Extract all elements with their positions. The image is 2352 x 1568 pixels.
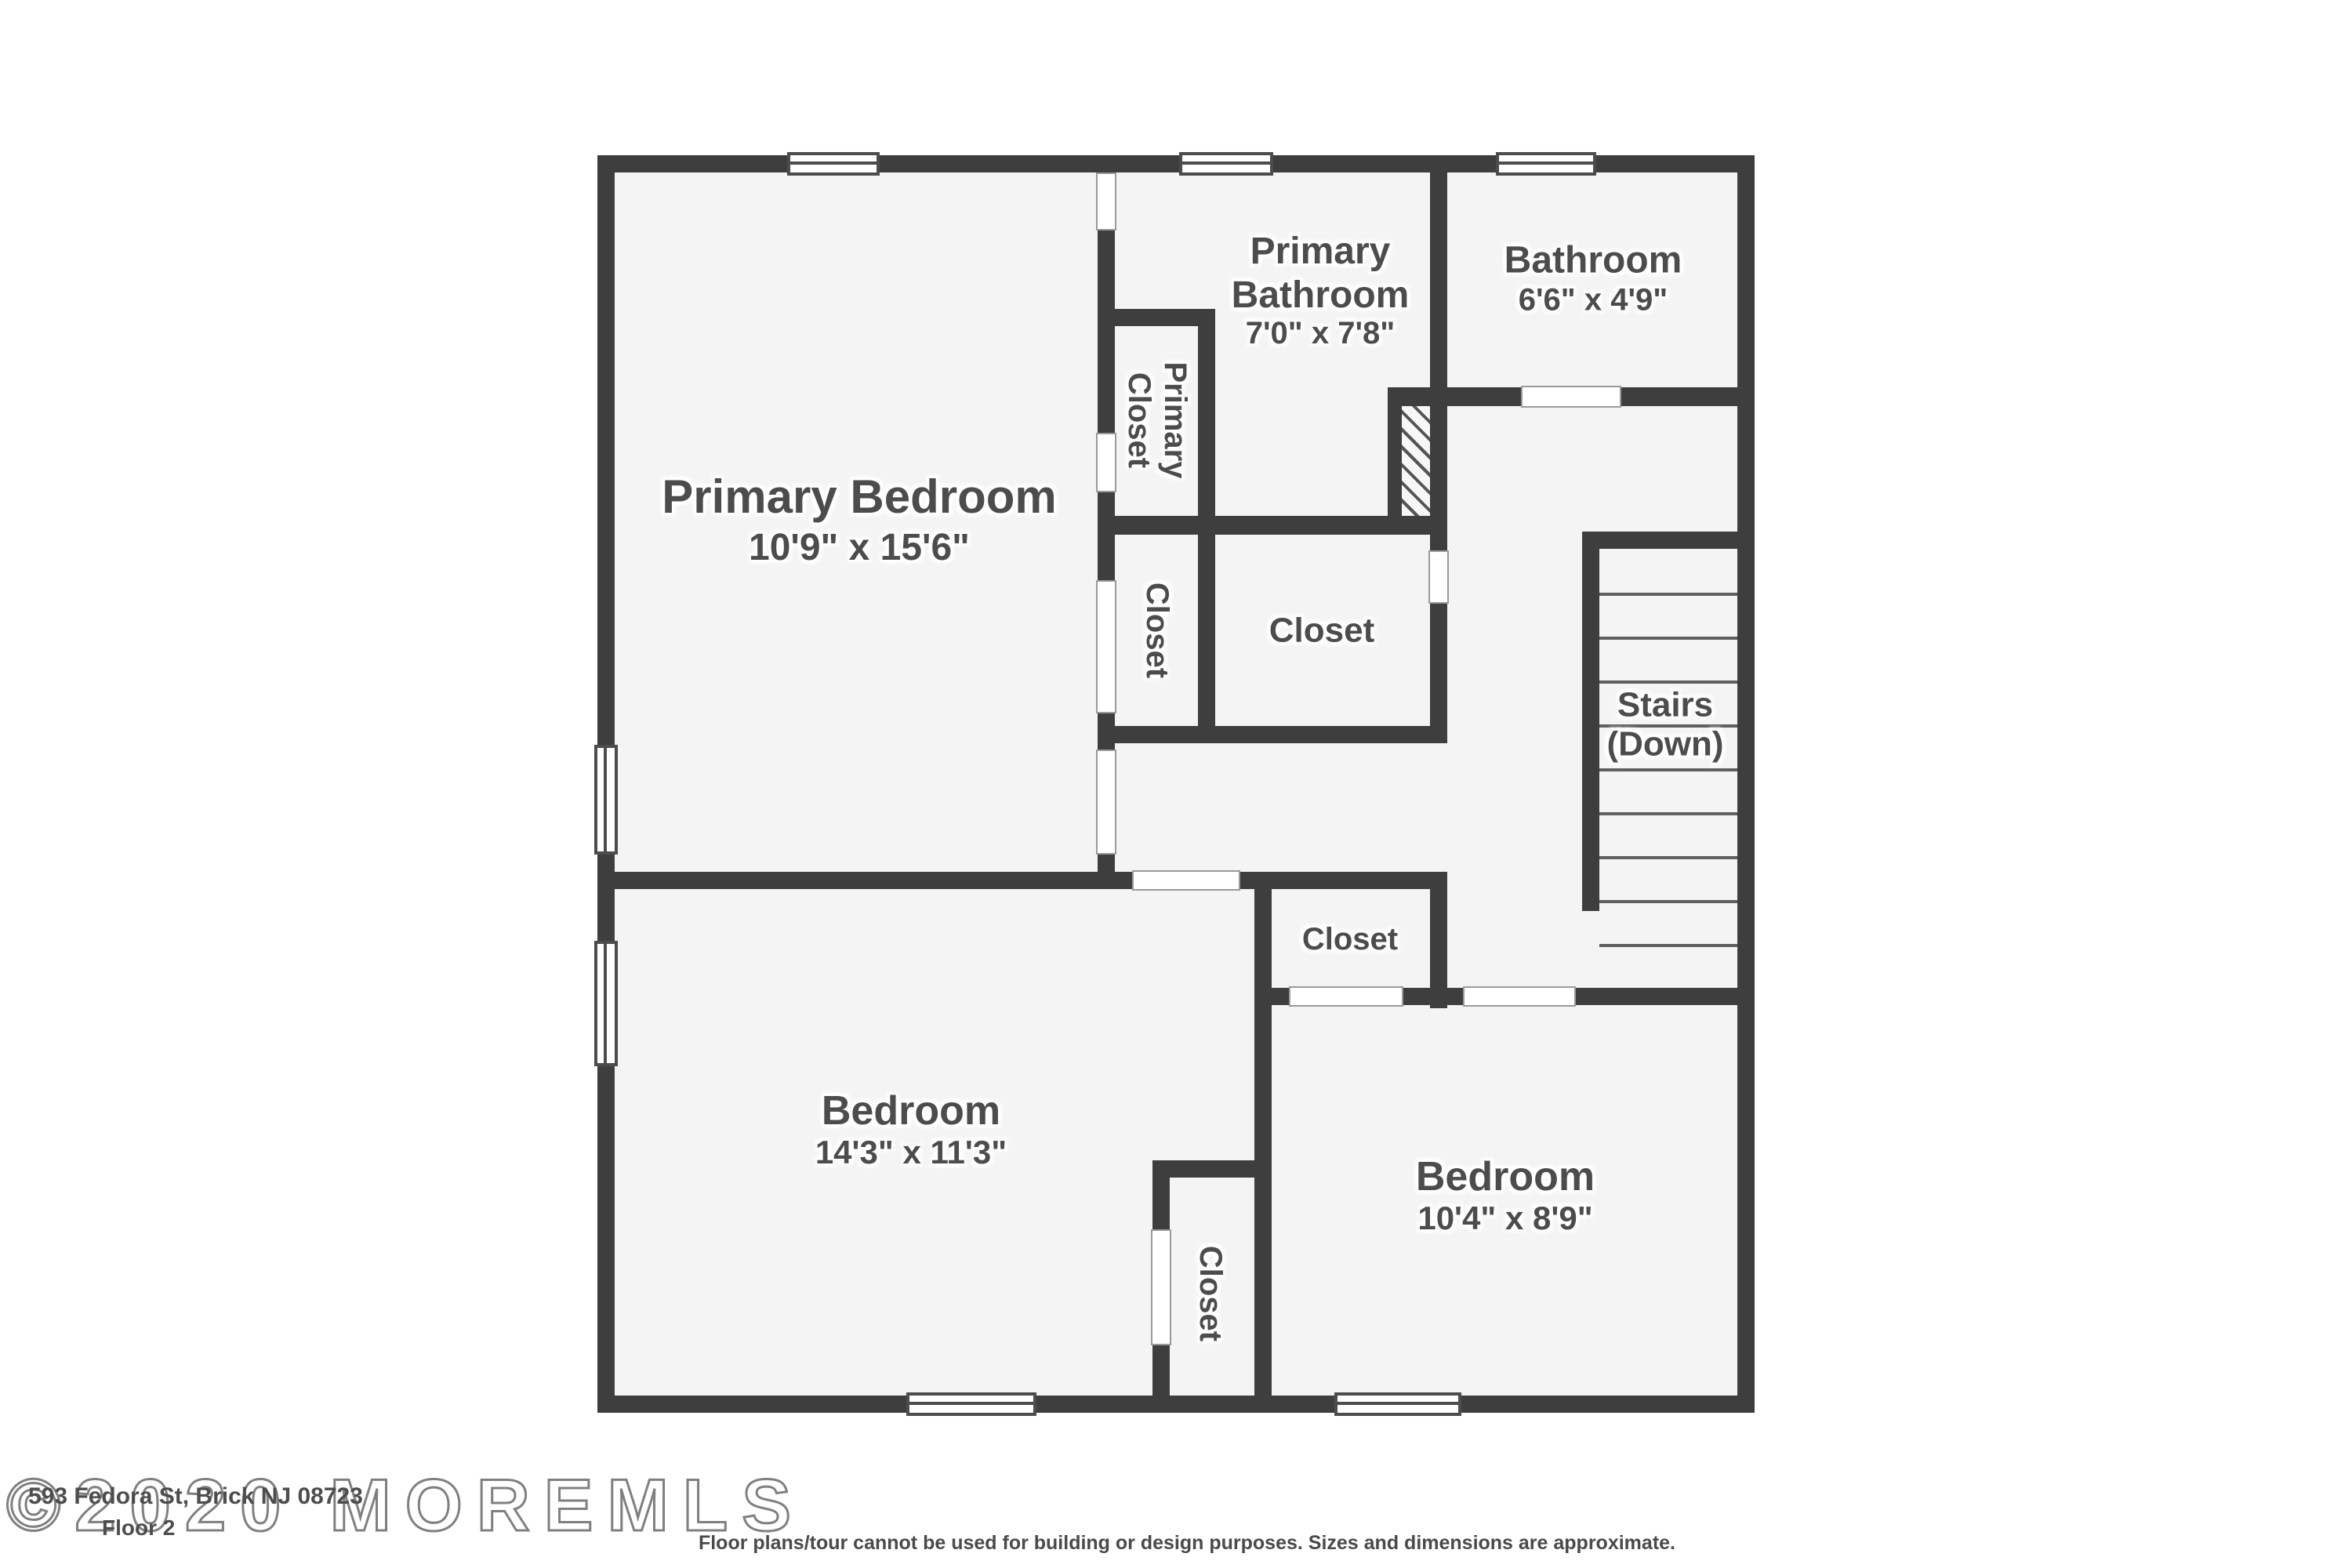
stairs-name: Stairs xyxy=(1606,684,1723,724)
stair-tread xyxy=(1599,900,1737,903)
door-opening xyxy=(1521,386,1621,408)
room-label-primary-closet: PrimaryCloset xyxy=(1120,362,1192,479)
wall-segment xyxy=(1098,492,1115,580)
wall-segment xyxy=(1388,387,1402,535)
window xyxy=(787,152,880,176)
room-label-closet-left: Closet xyxy=(1138,583,1174,678)
stair-tread xyxy=(1599,768,1737,771)
window xyxy=(594,745,618,855)
wall-stairs-top xyxy=(1599,532,1737,549)
room-name: Bedroom xyxy=(1416,1154,1595,1201)
room-label-primary-bedroom: Primary Bedroom 10'9" x 15'6" xyxy=(662,472,1057,569)
wall-segment xyxy=(1254,872,1272,1396)
window xyxy=(594,941,618,1066)
door-opening xyxy=(1289,986,1403,1007)
room-label-bathroom: Bathroom 6'6" x 4'9" xyxy=(1504,239,1682,318)
wall-segment xyxy=(1403,988,1463,1005)
door-opening xyxy=(1428,550,1449,604)
wall-segment xyxy=(615,872,1132,889)
wall-segment xyxy=(1621,387,1737,406)
window xyxy=(1334,1392,1461,1416)
door-opening xyxy=(1096,580,1116,713)
room-dims: 6'6" x 4'9" xyxy=(1504,283,1682,319)
room-dims: 7'0" x 7'8" xyxy=(1187,317,1454,353)
window xyxy=(1179,152,1273,176)
door-opening xyxy=(1096,433,1116,492)
wall-segment xyxy=(1098,516,1447,535)
door-opening xyxy=(1096,172,1116,230)
stairs-direction: (Down) xyxy=(1606,724,1723,764)
window xyxy=(906,1392,1036,1416)
property-address: 593 Fedora St, Brick NJ 08723 xyxy=(28,1483,363,1510)
stair-tread xyxy=(1599,944,1737,947)
door-opening xyxy=(1096,750,1116,855)
room-name: Closet xyxy=(1191,1246,1227,1341)
room-label-bedroom-left: Bedroom 14'3" x 11'3" xyxy=(815,1088,1007,1173)
floor-plan-canvas: Primary Bedroom 10'9" x 15'6" Primary Ba… xyxy=(0,0,2352,1568)
stair-tread xyxy=(1599,593,1737,596)
room-label-closet-hall: Closet xyxy=(1302,923,1398,959)
room-name: PrimaryCloset xyxy=(1120,362,1192,479)
room-label-bedroom-right: Bedroom 10'4" x 8'9" xyxy=(1416,1154,1595,1239)
wall-segment xyxy=(1388,387,1521,406)
room-label-closet-lower: Closet xyxy=(1191,1246,1227,1341)
wall-segment xyxy=(1152,1160,1272,1178)
room-dims: 14'3" x 11'3" xyxy=(815,1135,1007,1173)
wall-segment xyxy=(1430,172,1447,550)
wall-segment xyxy=(1254,988,1289,1005)
window xyxy=(1496,152,1596,176)
stair-tread xyxy=(1599,856,1737,859)
hatched-chase xyxy=(1402,406,1430,516)
room-label-stairs: Stairs (Down) xyxy=(1606,684,1723,764)
floor-number-label: Floor 2 xyxy=(102,1515,175,1540)
door-opening xyxy=(1132,870,1240,891)
room-name: Primary Bathroom xyxy=(1187,230,1454,317)
wall-segment xyxy=(1152,1178,1170,1229)
door-opening xyxy=(1151,1229,1171,1345)
wall-segment xyxy=(1098,726,1447,743)
room-name: Closet xyxy=(1138,583,1174,678)
stair-tread xyxy=(1599,637,1737,640)
wall-outer-right xyxy=(1737,155,1755,1413)
room-name: Bathroom xyxy=(1504,239,1682,282)
room-name: Bedroom xyxy=(815,1088,1007,1135)
wall-segment xyxy=(1098,230,1115,433)
room-name: Primary Bedroom xyxy=(662,472,1057,526)
wall-segment xyxy=(1430,604,1447,743)
room-name: Closet xyxy=(1269,611,1375,651)
room-label-closet-center: Closet xyxy=(1269,611,1375,651)
wall-outer-bottom xyxy=(597,1396,1755,1413)
room-dims: 10'9" x 15'6" xyxy=(662,526,1057,569)
stair-tread xyxy=(1599,681,1737,684)
stair-tread xyxy=(1599,812,1737,815)
room-label-primary-bathroom: Primary Bathroom 7'0" x 7'8" xyxy=(1187,230,1454,353)
disclaimer-text: Floor plans/tour cannot be used for buil… xyxy=(599,1532,1775,1554)
wall-segment xyxy=(1240,872,1447,889)
wall-segment xyxy=(1152,1345,1170,1396)
room-name: Closet xyxy=(1302,923,1398,959)
room-dims: 10'4" x 8'9" xyxy=(1416,1201,1595,1239)
wall-stairs-bottom xyxy=(1576,988,1737,1005)
door-opening xyxy=(1463,986,1576,1007)
wall-stairs-left xyxy=(1582,532,1599,911)
